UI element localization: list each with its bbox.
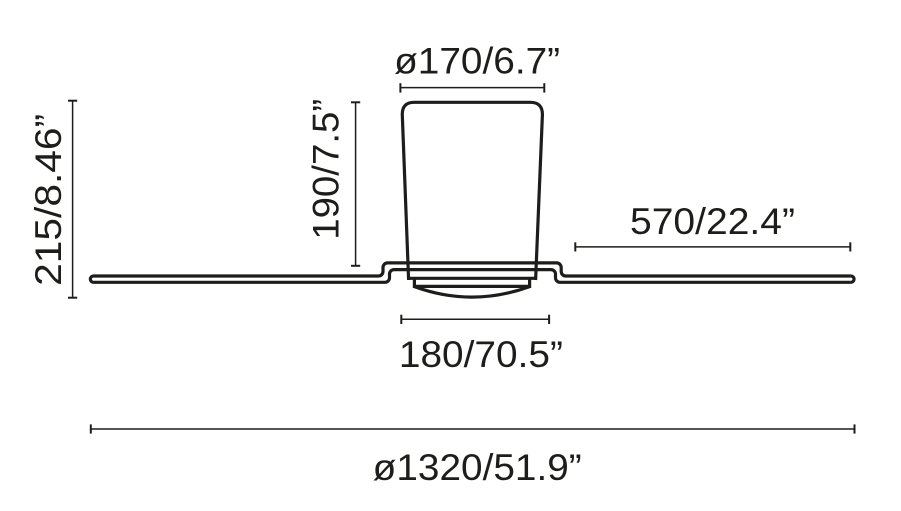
- svg-text:180/70.5”: 180/70.5”: [399, 334, 563, 375]
- svg-text:ø1320/51.9”: ø1320/51.9”: [373, 447, 582, 488]
- svg-text:570/22.4”: 570/22.4”: [630, 201, 795, 242]
- svg-text:215/8.46”: 215/8.46”: [28, 114, 69, 286]
- svg-text:190/7.5”: 190/7.5”: [305, 99, 346, 240]
- svg-text:ø170/6.7”: ø170/6.7”: [394, 40, 560, 81]
